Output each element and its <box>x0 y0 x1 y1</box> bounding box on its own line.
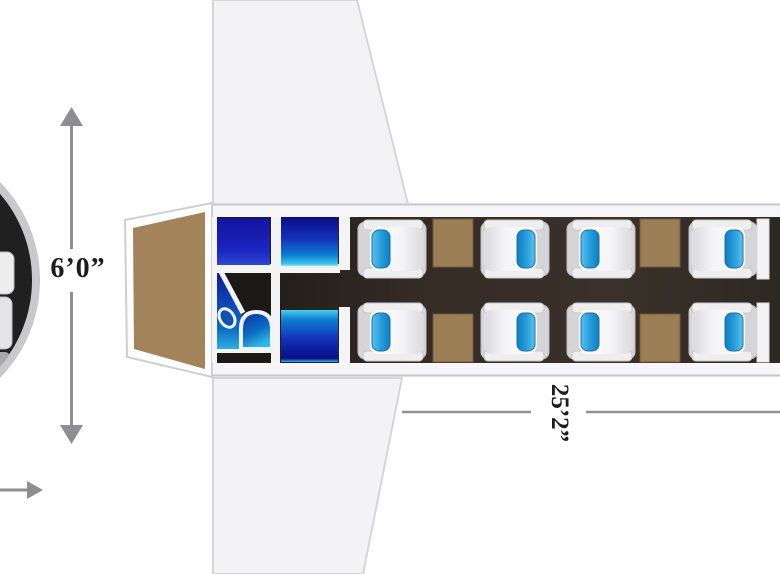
galley-unit-3 <box>281 310 338 362</box>
nose-section <box>125 203 212 377</box>
club-table <box>640 314 680 362</box>
seat <box>567 220 635 278</box>
top-wing <box>213 0 408 204</box>
cross-section-seat <box>0 252 14 294</box>
arrow-down-icon <box>60 425 83 444</box>
seat <box>481 303 549 361</box>
club-table <box>433 219 473 267</box>
seat <box>689 220 757 278</box>
club-table <box>433 314 473 362</box>
arrow-right-icon <box>27 481 43 499</box>
lavatory <box>216 270 277 362</box>
toilet-icon <box>241 312 272 349</box>
bottom-wing <box>213 378 402 574</box>
floorplan-drawing <box>0 0 780 574</box>
aircraft-floorplan-diagram: 6’0” 25’2” <box>0 0 780 574</box>
fuselage-cross-section <box>0 144 36 416</box>
seat <box>567 303 635 361</box>
seat <box>358 303 426 361</box>
cockpit-area <box>133 212 205 369</box>
arrow-up-icon <box>60 107 83 126</box>
cabin-height-label: 6’0” <box>42 252 114 288</box>
seat <box>358 220 426 278</box>
seat <box>689 303 757 361</box>
seat <box>481 220 549 278</box>
cabin-length-label: 25’2” <box>543 382 573 444</box>
width-dimension-arrow <box>0 481 43 499</box>
galley-unit-1 <box>217 218 270 265</box>
club-table <box>640 219 680 267</box>
galley-unit-2 <box>281 217 338 266</box>
